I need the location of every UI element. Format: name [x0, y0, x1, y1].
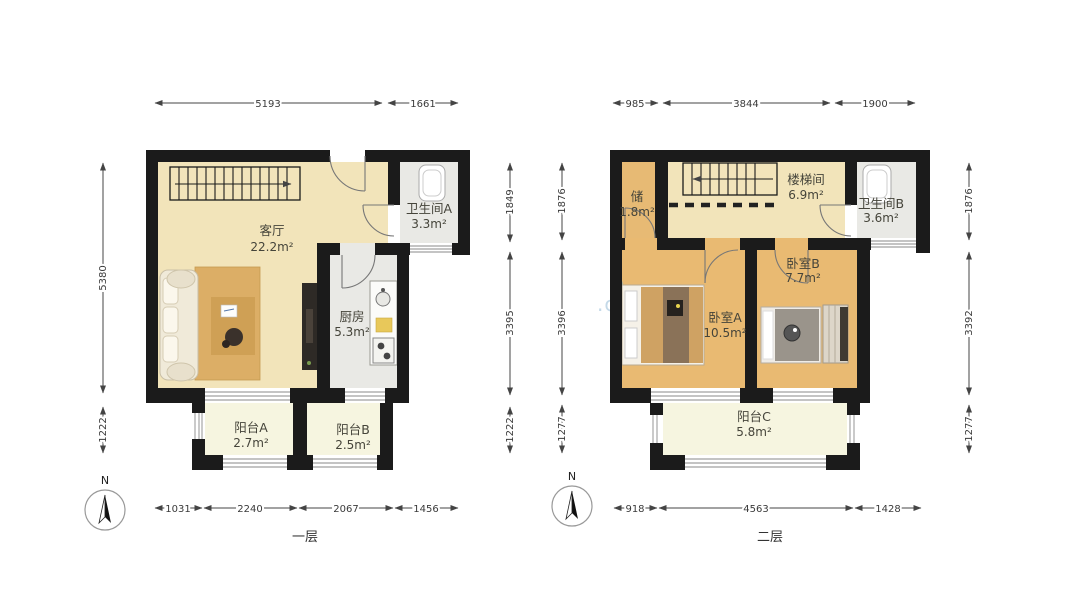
room-area: 5.3m² — [334, 325, 370, 339]
floor1-dim-top: 5193 1661 — [155, 99, 458, 110]
room-area: 3.3m² — [411, 217, 447, 231]
dim-value: 1277 — [557, 416, 568, 441]
floor1-name: 一层 — [292, 530, 318, 545]
room-area: 5.8m² — [736, 425, 772, 439]
dim-value: 1428 — [875, 504, 900, 515]
dim-value: 918 — [625, 504, 644, 515]
dim-value: 985 — [625, 99, 644, 110]
room-label: 阳台A — [234, 420, 268, 435]
dim-value: 3392 — [964, 310, 975, 335]
dim-value: 1031 — [165, 504, 190, 515]
floor2-compass: N — [552, 470, 592, 526]
room-area: 3.6m² — [863, 211, 899, 225]
wardrobe — [823, 305, 848, 363]
floor2-dim-top: 985 3844 1900 — [613, 99, 915, 110]
floor1-dim-left: 5380 1222 — [98, 163, 109, 453]
dim-value: 2067 — [333, 504, 358, 515]
floor1-plan: 客厅 22.2m² 卫生间A 3.3m² 厨房 5.3m² 阳台A 2.7m² … — [55, 85, 525, 585]
room-area: 10.5m² — [703, 326, 746, 340]
floor2-plan: .com — [545, 85, 1015, 585]
room-area: 2.7m² — [233, 436, 269, 450]
room-label: 卧室A — [708, 310, 742, 325]
room-label: 厨房 — [339, 309, 364, 324]
rug — [195, 267, 260, 380]
dim-value: 1849 — [505, 189, 516, 214]
bathtub-a — [419, 165, 445, 201]
dim-value: 1222 — [98, 417, 109, 442]
floorplan-canvas: 客厅 22.2m² 卫生间A 3.3m² 厨房 5.3m² 阳台A 2.7m² … — [0, 0, 1090, 615]
floor2-name: 二层 — [757, 530, 783, 545]
room-label: 阳台C — [737, 409, 771, 424]
room-label: 客厅 — [259, 223, 284, 238]
room-label: 卫生间B — [858, 196, 904, 211]
dim-value: 3844 — [733, 99, 758, 110]
room-label: 储 — [631, 189, 644, 204]
compass-north-label: N — [101, 474, 109, 487]
dim-value: 1222 — [505, 417, 516, 442]
dim-value: 1876 — [557, 188, 568, 213]
dim-value: 3396 — [557, 310, 568, 335]
room-area: 1.8m² — [619, 205, 655, 219]
compass-north-label: N — [568, 470, 576, 483]
floor1-compass: N — [85, 474, 125, 530]
dim-value: 5193 — [255, 99, 280, 110]
sofa — [160, 270, 198, 381]
room-area: 6.9m² — [788, 188, 824, 202]
room-area: 22.2m² — [250, 240, 293, 254]
room-area: 7.7m² — [785, 271, 821, 285]
dim-value: 1277 — [964, 416, 975, 441]
room-label: 卧室B — [786, 256, 820, 271]
room-label: 卫生间A — [406, 201, 453, 216]
dim-value: 2240 — [237, 504, 262, 515]
dim-value: 1900 — [862, 99, 887, 110]
dim-value: 1456 — [413, 504, 438, 515]
room-label: 阳台B — [336, 422, 370, 437]
tv-cabinet — [302, 283, 317, 370]
floor2-dim-left: 1876 3396 1277 — [557, 163, 568, 453]
room-area: 2.5m² — [335, 438, 371, 452]
dim-value: 4563 — [743, 504, 768, 515]
dim-value: 5380 — [98, 265, 109, 290]
room-label: 楼梯间 — [787, 172, 825, 187]
kitchen-counter — [370, 281, 397, 365]
floor1-dim-right: 1849 3395 1222 — [505, 163, 516, 453]
floor2-dim-bottom: 918 4563 1428 — [614, 504, 921, 515]
dim-value: 1661 — [410, 99, 435, 110]
floor1-dim-bottom: 1031 2240 2067 1456 — [155, 504, 458, 515]
dim-value: 3395 — [505, 310, 516, 335]
floor2-dim-right: 1876 3392 1277 — [964, 163, 975, 453]
dim-value: 1876 — [964, 188, 975, 213]
bed-a — [622, 285, 704, 365]
bed-b — [761, 307, 821, 363]
